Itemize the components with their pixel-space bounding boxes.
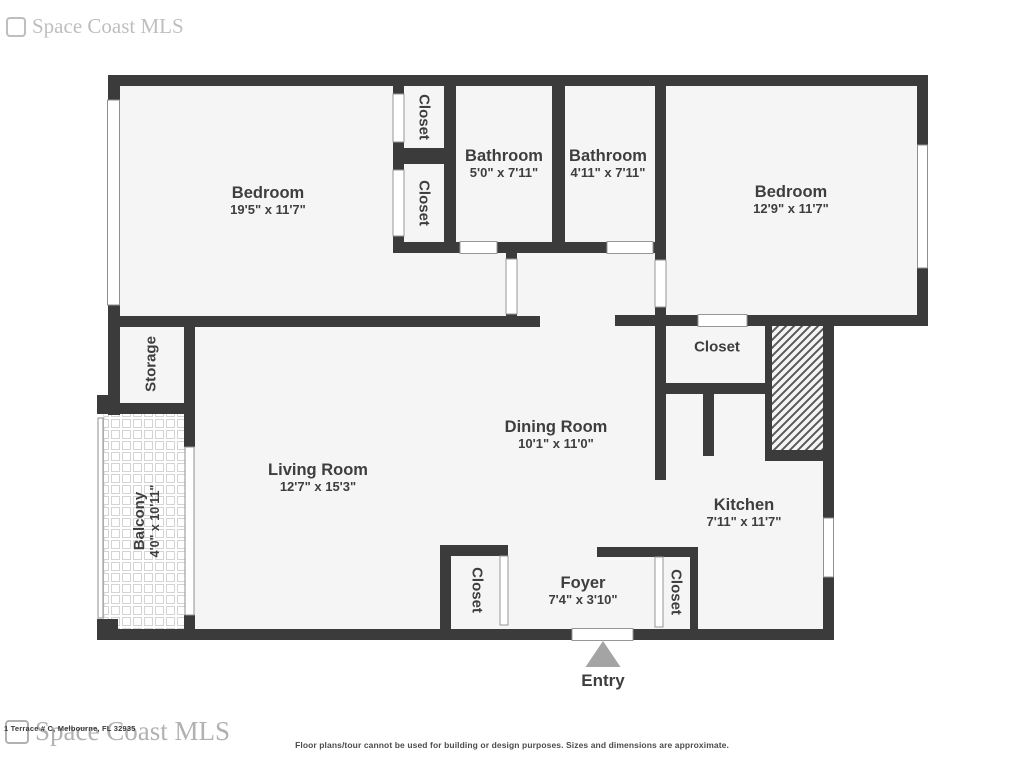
floorplan-page: Bedroom 19'5" x 11'7" Closet Closet Bath… — [0, 0, 1024, 768]
door-opening — [655, 557, 663, 627]
wall — [184, 316, 195, 447]
window — [108, 100, 120, 305]
sliding-door — [185, 447, 194, 615]
entry-arrow-icon — [586, 641, 621, 667]
wall — [440, 545, 451, 629]
entry-label: Entry — [581, 671, 624, 691]
disclaimer-text: Floor plans/tour cannot be used for buil… — [0, 740, 1024, 750]
room-label-storage: Storage — [142, 336, 159, 392]
window — [918, 145, 928, 268]
wall — [747, 315, 928, 326]
room-label-closet-foyer-left: Closet — [468, 567, 485, 613]
wall — [97, 629, 834, 640]
door-opening — [460, 242, 497, 254]
hatched-utility-area — [772, 326, 823, 450]
entry-door-opening — [572, 629, 633, 641]
door-opening — [698, 315, 747, 327]
wall — [655, 383, 771, 394]
room-label-living-room: Living Room 12'7" x 15'3" — [268, 461, 368, 495]
door-opening — [393, 170, 404, 236]
wall — [444, 86, 456, 253]
room-label-dining-room: Dining Room 10'1" x 11'0" — [505, 418, 608, 452]
room-label-bathroom-1: Bathroom 5'0" x 7'11" — [465, 147, 543, 181]
wall — [444, 242, 460, 253]
room-label-closet-dining: Closet — [694, 338, 740, 355]
door-opening — [500, 556, 508, 625]
room-label-bathroom-2: Bathroom 4'11" x 7'11" — [569, 147, 647, 181]
wall — [108, 316, 540, 327]
door-opening — [393, 94, 404, 142]
room-label-closet-foyer-right: Closet — [667, 569, 684, 615]
room-label-bedroom-right: Bedroom 12'9" x 11'7" — [753, 183, 829, 217]
door-opening — [655, 260, 666, 307]
room-label-closet-top-1: Closet — [415, 94, 432, 140]
wall — [97, 403, 195, 414]
door-opening — [607, 242, 653, 254]
room-label-foyer: Foyer 7'4" x 3'10" — [548, 574, 617, 608]
wall — [823, 577, 834, 629]
room-label-closet-top-2: Closet — [415, 180, 432, 226]
wall — [690, 547, 698, 629]
balcony-screen — [98, 418, 103, 618]
room-label-balcony: Balcony 4'0" x 10'11" — [131, 485, 163, 558]
wall — [823, 326, 834, 518]
wall — [108, 75, 928, 86]
wall — [765, 326, 772, 450]
room-label-kitchen: Kitchen 7'11" x 11'7" — [707, 496, 782, 530]
wall — [597, 547, 698, 557]
wall — [552, 86, 565, 253]
room-label-bedroom-left: Bedroom 19'5" x 11'7" — [230, 184, 306, 218]
wall — [184, 615, 195, 640]
wall — [703, 394, 714, 456]
window — [824, 518, 834, 577]
door-opening — [506, 259, 517, 314]
listing-address: 1 Terrace # C, Melbourne, FL 32935 — [4, 724, 136, 733]
wall — [497, 242, 607, 253]
